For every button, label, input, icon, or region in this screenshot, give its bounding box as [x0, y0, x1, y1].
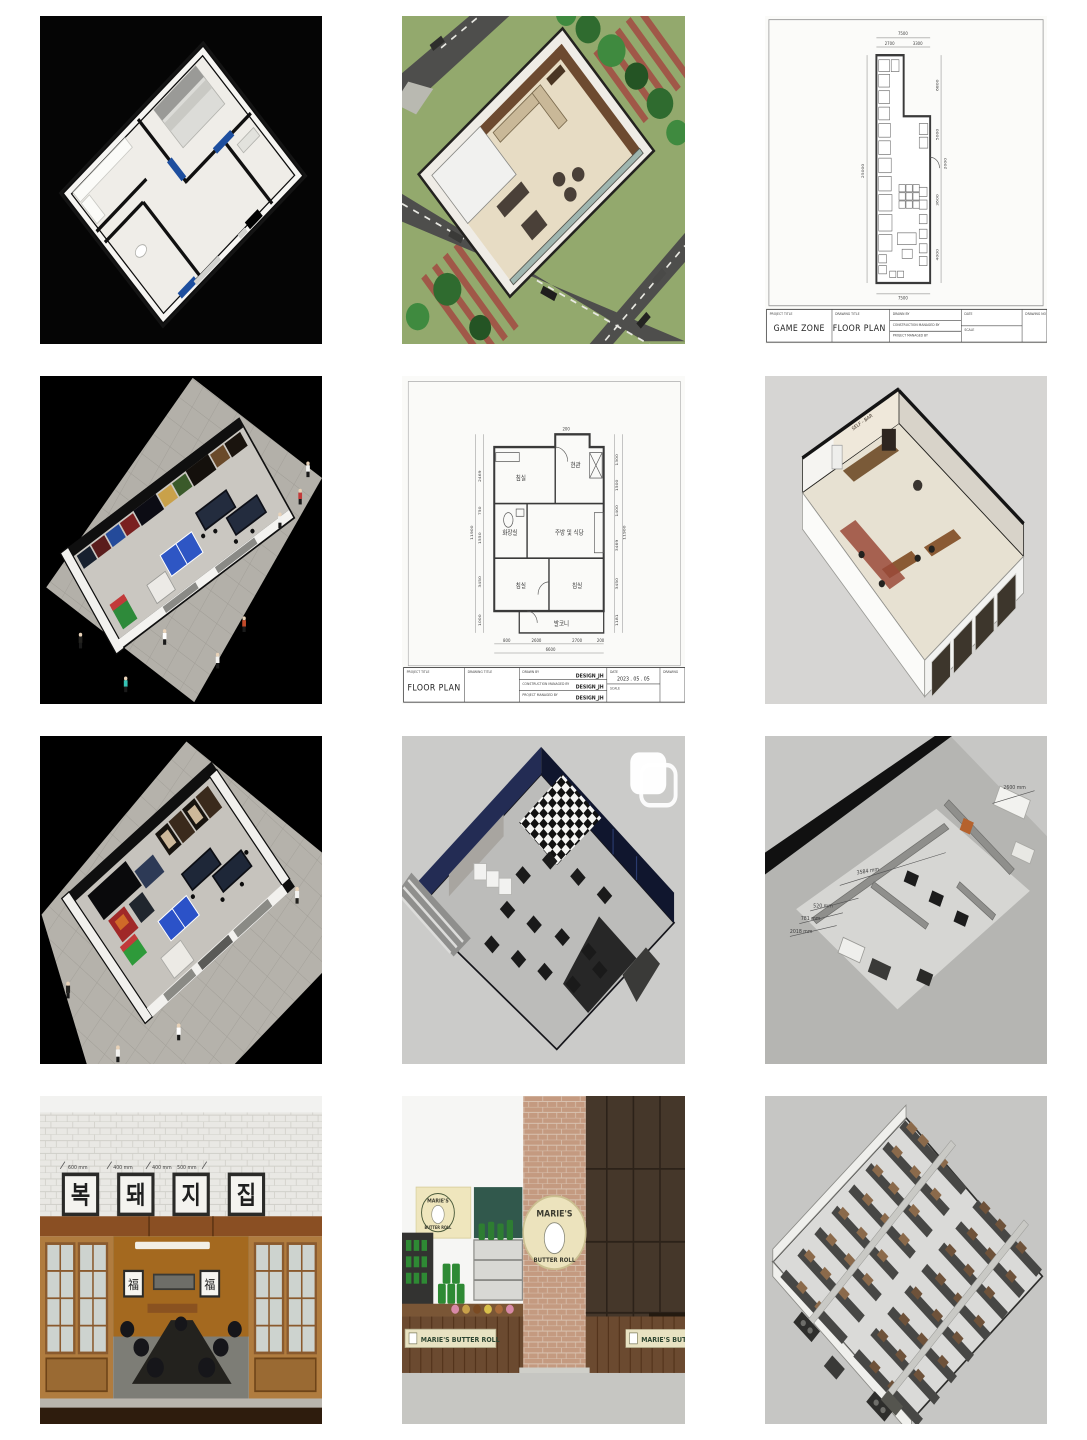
svg-text:1300: 1300: [614, 454, 619, 466]
gallery-item-floorplan[interactable]: 침실 현관 주방 및 식당 화장실 침실 침실 발코니 2469 750 155…: [402, 376, 685, 704]
svg-text:福: 福: [128, 1277, 139, 1292]
storefront: 福 福: [40, 1236, 322, 1398]
stand: [913, 480, 922, 491]
svg-text:11900: 11900: [622, 525, 627, 540]
center-interior: 福 福: [113, 1236, 249, 1398]
svg-text:520 mm: 520 mm: [813, 903, 833, 909]
svg-text:3469: 3469: [614, 539, 619, 551]
svg-text:2000: 2000: [943, 157, 948, 169]
banner-right: MARIE'S BUTTER ROLL: [626, 1329, 685, 1347]
mirror: [154, 1275, 195, 1290]
svg-text:6800: 6800: [935, 79, 940, 91]
svg-text:DRAWING: DRAWING: [663, 670, 678, 674]
svg-text:FLOOR PLAN: FLOOR PLAN: [408, 682, 461, 693]
gallery-item-restaurant-cutaway[interactable]: SELF - BAR: [765, 376, 1047, 704]
svg-text:3450: 3450: [477, 576, 482, 588]
svg-text:DESIGN_JH: DESIGN_JH: [576, 695, 604, 701]
svg-text:BUTTER ROLL: BUTTER ROLL: [534, 1256, 576, 1264]
svg-text:DATE: DATE: [964, 312, 972, 316]
lattice-left: [40, 1236, 113, 1398]
svg-text:2700: 2700: [885, 41, 895, 46]
svg-text:DRAWING TITLE: DRAWING TITLE: [468, 670, 493, 674]
svg-text:2700: 2700: [572, 638, 582, 643]
svg-text:침실: 침실: [516, 581, 526, 590]
svg-text:2600 mm: 2600 mm: [1003, 785, 1026, 791]
gallery-item-arcade-room[interactable]: [40, 736, 322, 1064]
svg-text:200: 200: [562, 426, 570, 431]
svg-text:1181: 1181: [614, 614, 619, 626]
svg-text:주방 및 식당: 주방 및 식당: [555, 528, 584, 537]
svg-text:1400: 1400: [614, 505, 619, 517]
svg-text:600 mm: 600 mm: [68, 1165, 88, 1171]
svg-text:지: 지: [181, 1182, 200, 1210]
gallery-item-apartment-3d[interactable]: [40, 16, 322, 344]
svg-text:PROJECT MANAGED BY: PROJECT MANAGED BY: [522, 693, 558, 697]
arcade-room-render: [40, 736, 322, 1064]
svg-text:3300: 3300: [913, 41, 923, 46]
svg-text:MARIE'S: MARIE'S: [536, 1208, 572, 1219]
svg-text:침실: 침실: [516, 473, 526, 482]
sill: [40, 1398, 322, 1407]
cafe-aerial-render: [402, 16, 685, 344]
svg-text:2600: 2600: [532, 638, 542, 643]
ground: [402, 1373, 685, 1424]
svg-text:7500: 7500: [898, 295, 908, 300]
svg-text:2023 . 05 . 05: 2023 . 05 . 05: [617, 676, 650, 682]
render-gallery-grid: 7500 2700 3300 25000 6800 5000 2000 3600…: [0, 0, 1087, 1440]
svg-text:MARIE'S BUTTER ROLL: MARIE'S BUTTER ROLL: [641, 1336, 685, 1345]
gallery-item-korean-facade[interactable]: 600 mm 400 mm 400 mm 500 mm 복 돼 지: [40, 1096, 322, 1424]
apartment-floor-plan: 침실 현관 주방 및 식당 화장실 침실 침실 발코니 2469 750 155…: [402, 376, 685, 704]
gallery-item-cafe-aerial[interactable]: [402, 16, 685, 344]
svg-text:DESIGN_JH: DESIGN_JH: [576, 673, 604, 679]
pc-room-render: [402, 736, 685, 1064]
svg-text:3600: 3600: [935, 194, 940, 206]
fridge: [832, 445, 842, 469]
svg-text:발코니: 발코니: [554, 619, 569, 628]
svg-text:MARIE'S: MARIE'S: [427, 1198, 449, 1204]
title-block: PROJECT TITLE FLOOR PLAN DRAWING TITLE D…: [404, 668, 685, 703]
svg-text:781 mm: 781 mm: [801, 916, 821, 922]
base: [40, 1408, 322, 1424]
svg-text:1500: 1500: [614, 479, 619, 491]
svg-text:1550: 1550: [477, 532, 482, 544]
mascot-squirrel: [432, 1205, 445, 1223]
svg-text:복: 복: [71, 1182, 90, 1210]
svg-text:DRAWN BY: DRAWN BY: [893, 312, 910, 316]
gallery-item-warehouse[interactable]: [765, 1096, 1047, 1424]
svg-text:DESIGN_JH: DESIGN_JH: [576, 684, 604, 690]
gallery-item-gamezone-plan[interactable]: 7500 2700 3300 25000 6800 5000 2000 3600…: [765, 16, 1047, 344]
drink-fridge: [402, 1233, 433, 1311]
svg-text:7500: 7500: [898, 31, 908, 36]
svg-text:침실: 침실: [572, 581, 582, 590]
svg-text:BUTTER ROLL: BUTTER ROLL: [425, 1225, 452, 1230]
svg-text:1000: 1000: [477, 614, 482, 626]
game-zone-floor-plan: 7500 2700 3300 25000 6800 5000 2000 3600…: [765, 16, 1047, 344]
svg-text:2018 mm: 2018 mm: [790, 929, 813, 935]
restaurant-cutaway-render: SELF - BAR: [765, 376, 1047, 704]
brick-column: MARIE'S BUTTER ROLL: [519, 1096, 589, 1375]
svg-text:CONSTRUCTION MANAGED BY: CONSTRUCTION MANAGED BY: [893, 323, 941, 327]
svg-text:PROJECT TITLE: PROJECT TITLE: [407, 670, 430, 674]
lattice-right: [249, 1236, 322, 1398]
wine-shelf: [882, 429, 896, 451]
svg-text:DRAWN BY: DRAWN BY: [522, 670, 539, 674]
svg-text:400 mm: 400 mm: [113, 1165, 133, 1171]
svg-text:SCALE: SCALE: [964, 328, 974, 332]
svg-text:3450: 3450: [614, 578, 619, 590]
banner-mascot-icon: [409, 1333, 417, 1344]
apartment-3d-render: [40, 16, 322, 344]
svg-text:11900: 11900: [469, 525, 474, 540]
svg-text:200: 200: [597, 638, 605, 643]
svg-text:800: 800: [503, 638, 511, 643]
banner-left: MARIE'S BUTTER ROLL: [405, 1329, 500, 1347]
svg-text:400 mm: 400 mm: [152, 1165, 172, 1171]
gallery-item-arcade-long[interactable]: [40, 376, 322, 704]
svg-text:6600: 6600: [546, 647, 556, 652]
svg-text:DRAWING TITLE: DRAWING TITLE: [835, 312, 859, 316]
korean-bbq-facade: 600 mm 400 mm 400 mm 500 mm 복 돼 지: [40, 1096, 322, 1424]
bakery-facade: MARIE'S BUTTER ROLL: [402, 1096, 685, 1424]
svg-text:福: 福: [204, 1277, 215, 1292]
svg-text:집: 집: [237, 1182, 256, 1210]
svg-text:2469: 2469: [477, 470, 482, 482]
title-block: PROJECT TITLE GAME ZONE DRAWING TITLE FL…: [767, 309, 1047, 342]
svg-text:500 mm: 500 mm: [177, 1165, 197, 1171]
wood-fascia: [40, 1216, 322, 1236]
svg-text:화장실: 화장실: [502, 528, 517, 537]
ceiling-light: [135, 1242, 210, 1249]
svg-text:25000: 25000: [860, 163, 865, 178]
svg-text:DRAWING NO: DRAWING NO: [1025, 312, 1046, 316]
gallery-item-studio-model[interactable]: 3584 mm 520 mm 781 mm 2018 mm 2600 mm: [765, 736, 1047, 1064]
svg-text:GAME ZONE: GAME ZONE: [774, 323, 825, 334]
svg-text:MARIE'S BUTTER ROLL: MARIE'S BUTTER ROLL: [421, 1336, 500, 1345]
svg-text:DATE: DATE: [610, 670, 618, 674]
svg-text:SCALE: SCALE: [610, 686, 620, 690]
svg-text:CONSTRUCTION MANAGED BY: CONSTRUCTION MANAGED BY: [522, 682, 570, 686]
svg-text:5000: 5000: [935, 128, 940, 140]
gallery-item-bakery-facade[interactable]: MARIE'S BUTTER ROLL: [402, 1096, 685, 1424]
svg-text:PROJECT MANAGED BY: PROJECT MANAGED BY: [893, 333, 929, 337]
studio-3d-model: 3584 mm 520 mm 781 mm 2018 mm 2600 mm: [765, 736, 1047, 1064]
svg-text:FLOOR PLAN: FLOOR PLAN: [833, 323, 886, 334]
svg-text:750: 750: [477, 506, 482, 515]
svg-text:4000: 4000: [935, 249, 940, 261]
svg-text:현관: 현관: [571, 461, 582, 470]
gallery-item-pc-room[interactable]: [402, 736, 685, 1064]
svg-text:돼: 돼: [126, 1182, 145, 1210]
arcade-hall-long-render: [40, 376, 322, 704]
warehouse-shelving-render: [765, 1096, 1047, 1424]
svg-text:PROJECT TITLE: PROJECT TITLE: [770, 312, 793, 316]
